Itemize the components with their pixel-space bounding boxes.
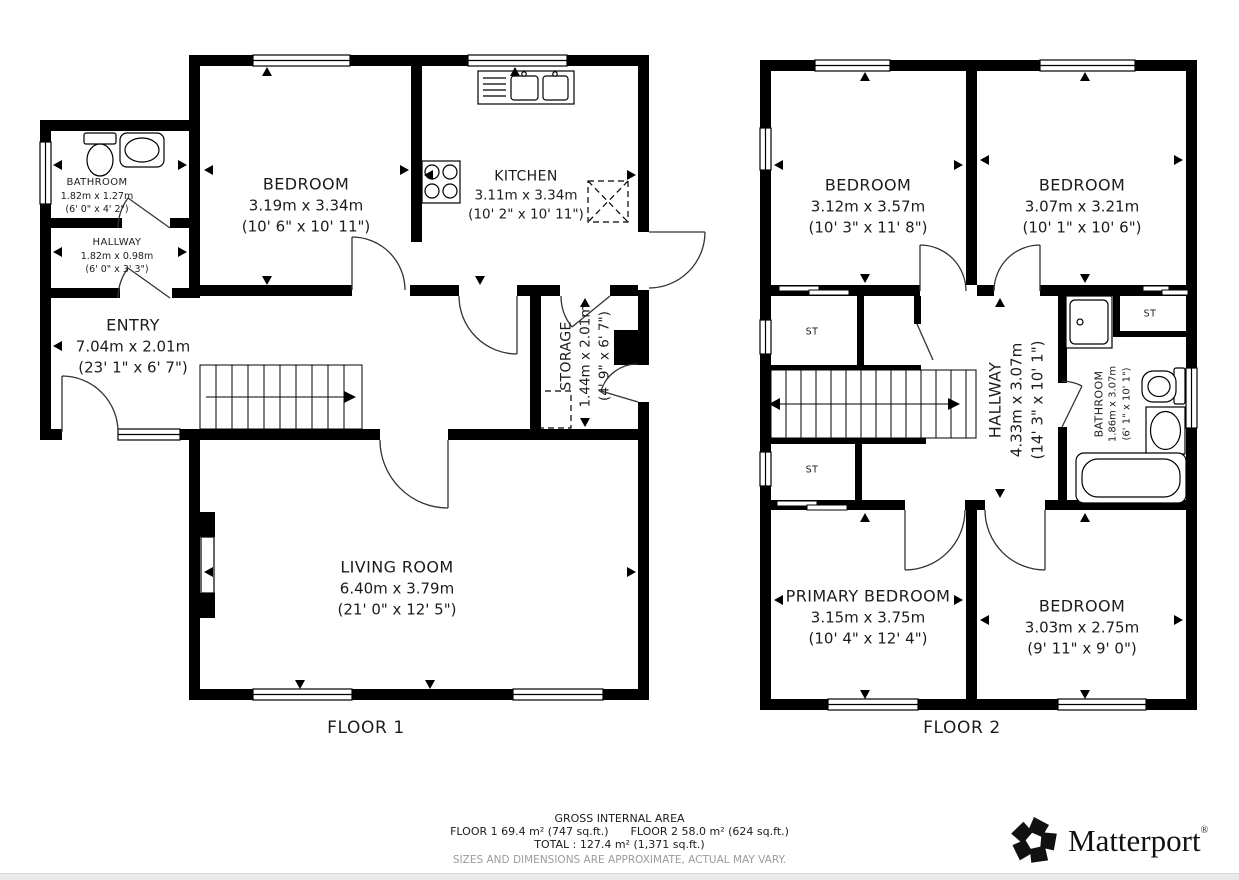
room-label-bathroom-f2: BATHROOM 1.86m x 3.07m (6' 1" x 10' 1") [1092, 366, 1135, 442]
room-name: BEDROOM [1023, 174, 1142, 196]
floor1-area: FLOOR 1 69.4 m² (747 sq.ft.) [450, 826, 608, 839]
room-name: BEDROOM [809, 174, 928, 196]
floor2-area: FLOOR 2 58.0 m² (624 sq.ft.) [631, 826, 789, 839]
room-name: BEDROOM [242, 173, 371, 195]
matterport-logo-icon [1008, 815, 1060, 867]
room-dim-metric: 1.82m x 1.27m [61, 190, 133, 203]
room-label-bedroom-tl-f2: BEDROOM 3.12m x 3.57m (10' 3" x 11' 8") [809, 174, 928, 237]
brand-name: Matterport [1068, 823, 1201, 858]
matterport-wordmark: Matterport® [1068, 823, 1208, 859]
room-dim-metric: 1.44m x 2.01m [577, 305, 596, 408]
matterport-logo: Matterport® [1008, 815, 1208, 867]
room-name: ENTRY [76, 314, 190, 336]
footer-bar [0, 873, 1239, 880]
room-dim-metric: 3.19m x 3.34m [242, 195, 371, 216]
room-dim-imperial: (23' 1" x 6' 7") [76, 357, 190, 378]
floorplan-page: BATHROOM 1.82m x 1.27m (6' 0" x 4' 2") H… [0, 0, 1239, 880]
room-label-entry-f1: ENTRY 7.04m x 2.01m (23' 1" x 6' 7") [76, 314, 190, 377]
room-name: PRIMARY BEDROOM [786, 585, 951, 607]
room-dim-imperial: (4' 9" x 6' 7") [596, 305, 615, 408]
room-label-primary-bedroom-f2: PRIMARY BEDROOM 3.15m x 3.75m (10' 4" x … [786, 585, 951, 648]
room-label-storage-f1: STORAGE 1.44m x 2.01m (4' 9" x 6' 7") [558, 305, 615, 408]
room-name: STORAGE [558, 305, 577, 408]
floor1-title: FLOOR 1 [327, 718, 405, 738]
floor2-title: FLOOR 2 [923, 718, 1001, 738]
room-dim-metric: 1.86m x 3.07m [1107, 366, 1121, 442]
room-name: KITCHEN [468, 168, 584, 187]
room-dim-metric: 3.12m x 3.57m [809, 196, 928, 217]
room-dim-imperial: (6' 1" x 10' 1") [1121, 366, 1135, 442]
room-name: BEDROOM [1025, 595, 1139, 617]
room-label-bedroom-f1: BEDROOM 3.19m x 3.34m (10' 6" x 10' 11") [242, 173, 371, 236]
room-dim-metric: 3.07m x 3.21m [1023, 196, 1142, 217]
room-name: HALLWAY [81, 236, 153, 250]
room-dim-imperial: (10' 6" x 10' 11") [242, 216, 371, 237]
closet-label-st3: ST [1144, 309, 1157, 320]
room-name: LIVING ROOM [338, 556, 457, 578]
room-label-bedroom-tr-f2: BEDROOM 3.07m x 3.21m (10' 1" x 10' 6") [1023, 174, 1142, 237]
room-dim-imperial: (21' 0" x 12' 5") [338, 599, 457, 620]
closet-label-st2: ST [806, 465, 819, 476]
room-dim-imperial: (10' 4" x 12' 4") [786, 628, 951, 649]
room-name: HALLWAY [984, 341, 1006, 460]
room-dim-imperial: (14' 3" x 10' 1") [1027, 341, 1048, 460]
room-dim-imperial: (10' 2" x 10' 11") [468, 206, 584, 225]
floor2-stairs [769, 370, 976, 438]
room-name: BATHROOM [1092, 366, 1107, 442]
floor1-stairs [200, 365, 362, 429]
room-dim-metric: 3.15m x 3.75m [786, 607, 951, 628]
room-label-kitchen-f1: KITCHEN 3.11m x 3.34m (10' 2" x 10' 11") [468, 168, 584, 225]
closet-label-st1: ST [806, 327, 819, 338]
room-dim-imperial: (10' 1" x 10' 6") [1023, 217, 1142, 238]
room-name: BATHROOM [61, 176, 133, 190]
room-dim-metric: 3.03m x 2.75m [1025, 617, 1139, 638]
room-dim-metric: 4.33m x 3.07m [1006, 341, 1027, 460]
room-dim-metric: 7.04m x 2.01m [76, 336, 190, 357]
room-label-hallway-f1: HALLWAY 1.82m x 0.98m (6' 0" x 3' 3") [81, 236, 153, 276]
room-dim-metric: 1.82m x 0.98m [81, 250, 153, 263]
room-label-bedroom-br-f2: BEDROOM 3.03m x 2.75m (9' 11" x 9' 0") [1025, 595, 1139, 658]
room-label-hallway-f2: HALLWAY 4.33m x 3.07m (14' 3" x 10' 1") [984, 341, 1047, 460]
registered-mark: ® [1201, 825, 1209, 836]
room-dim-metric: 3.11m x 3.34m [468, 187, 584, 206]
room-dim-imperial: (10' 3" x 11' 8") [809, 217, 928, 238]
room-dim-imperial: (6' 0" x 4' 2") [61, 203, 133, 216]
room-label-bathroom-f1: BATHROOM 1.82m x 1.27m (6' 0" x 4' 2") [61, 176, 133, 216]
room-label-living-room-f1: LIVING ROOM 6.40m x 3.79m (21' 0" x 12' … [338, 556, 457, 619]
room-dim-imperial: (9' 11" x 9' 0") [1025, 638, 1139, 659]
room-dim-imperial: (6' 0" x 3' 3") [81, 263, 153, 276]
floor-plan-canvas [0, 0, 1239, 880]
room-dim-metric: 6.40m x 3.79m [338, 578, 457, 599]
toilet-icon [84, 133, 116, 144]
